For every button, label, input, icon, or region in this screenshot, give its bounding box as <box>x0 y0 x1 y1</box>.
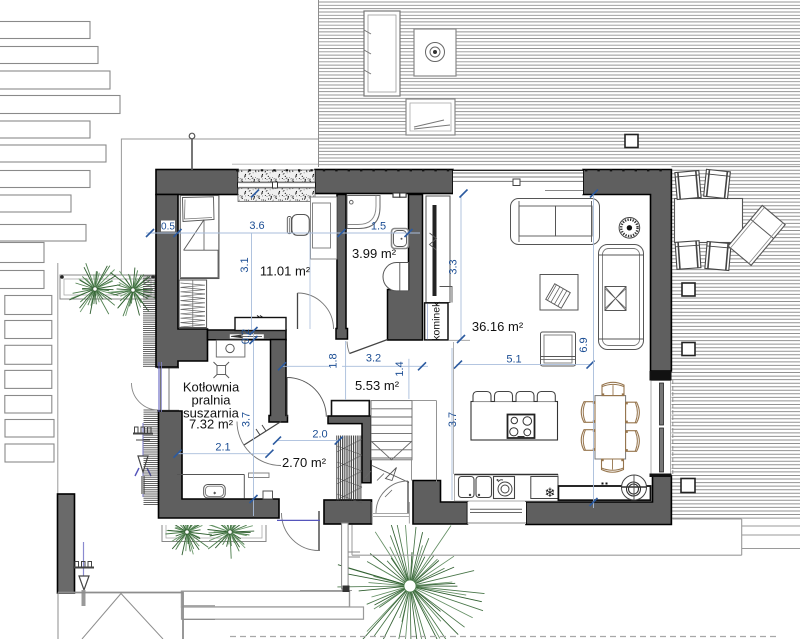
svg-text:❄: ❄ <box>545 485 556 500</box>
svg-text:2.70 m²: 2.70 m² <box>282 455 327 470</box>
svg-text:3.7: 3.7 <box>447 412 459 427</box>
svg-text:kominek: kominek <box>431 301 443 341</box>
svg-text:3.99 m²: 3.99 m² <box>352 246 397 261</box>
svg-text:3.3: 3.3 <box>448 259 460 274</box>
svg-text:2.1: 2.1 <box>215 442 230 454</box>
svg-text:5.53 m²: 5.53 m² <box>355 378 400 393</box>
svg-text:11.01 m²: 11.01 m² <box>260 264 311 279</box>
svg-text:1.4: 1.4 <box>394 361 406 376</box>
svg-text:3.2: 3.2 <box>366 353 381 365</box>
svg-text:3.7: 3.7 <box>241 412 253 427</box>
svg-text:1.8: 1.8 <box>328 353 340 368</box>
svg-text:0.2: 0.2 <box>240 329 252 344</box>
svg-text:2.0: 2.0 <box>312 429 327 441</box>
svg-text:0.5: 0.5 <box>161 222 175 233</box>
svg-text:7.32 m²: 7.32 m² <box>189 417 234 432</box>
svg-text:5.1: 5.1 <box>506 354 521 366</box>
svg-text:36.16 m²: 36.16 m² <box>472 319 524 334</box>
svg-text:6.9: 6.9 <box>578 337 590 352</box>
svg-text:1.5: 1.5 <box>371 221 386 233</box>
svg-text:3.6: 3.6 <box>249 220 264 232</box>
svg-text:3.1: 3.1 <box>239 257 251 272</box>
